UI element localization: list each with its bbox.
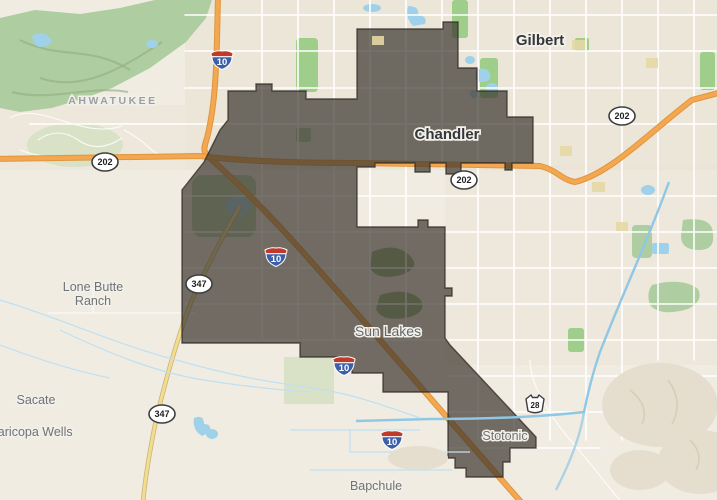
label-stotonic: Stotonic [482, 429, 527, 443]
label-chandler: Chandler [414, 126, 479, 143]
svg-text:347: 347 [191, 279, 206, 289]
map-canvas[interactable]: 10 10 10 10 202 202 202 347 347 28 Gilbe [0, 0, 717, 500]
loop-202-shield: 202 [92, 153, 118, 171]
loop-202-shield: 202 [451, 171, 477, 189]
label-lone-butte-ranch: Lone Butte [63, 280, 124, 294]
svg-text:10: 10 [339, 363, 350, 374]
label-gilbert: Gilbert [516, 32, 564, 49]
svg-text:202: 202 [97, 157, 112, 167]
svg-text:28: 28 [531, 401, 540, 410]
svg-text:202: 202 [614, 111, 629, 121]
label-sacate: Sacate [17, 393, 56, 407]
route-347-shield: 347 [186, 275, 212, 293]
svg-text:10: 10 [387, 437, 398, 448]
svg-text:347: 347 [154, 409, 169, 419]
label-ahwatukee: AHWATUKEE [68, 95, 157, 107]
label-sun-lakes: Sun Lakes [355, 323, 421, 339]
map-widget[interactable]: 10 10 10 10 202 202 202 347 347 28 Gilbe [0, 0, 717, 500]
route-28-shield: 28 [526, 395, 544, 413]
svg-text:202: 202 [456, 175, 471, 185]
label-lone-butte-ranch: Ranch [75, 294, 111, 308]
svg-text:10: 10 [217, 57, 228, 68]
loop-202-shield: 202 [609, 107, 635, 125]
label-bapchule: Bapchule [350, 479, 402, 493]
svg-text:10: 10 [271, 254, 282, 265]
label-maricopa-wells: Maricopa Wells [0, 425, 73, 439]
route-347-shield: 347 [149, 405, 175, 423]
